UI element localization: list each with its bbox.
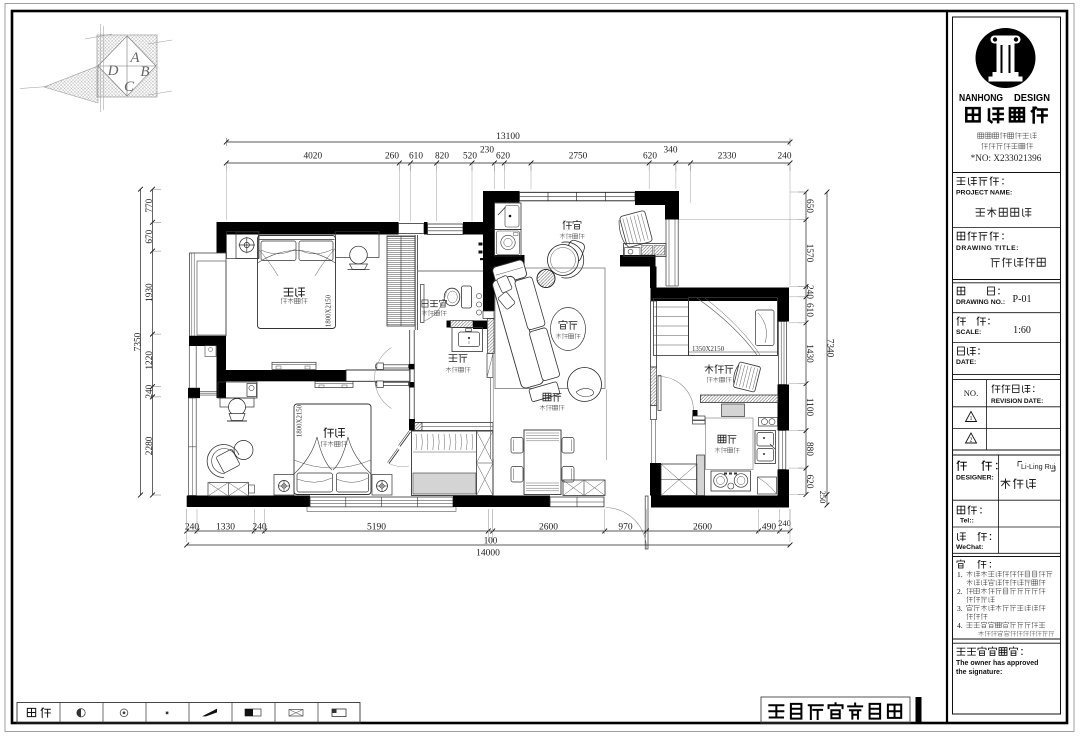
- svg-text:*NO: X233021396: *NO: X233021396: [971, 153, 1042, 163]
- svg-text:4020: 4020: [304, 152, 323, 162]
- svg-text:610: 610: [804, 303, 814, 317]
- svg-text:Li-Ling Rui: Li-Ling Rui: [1021, 462, 1056, 471]
- svg-text:2: 2: [970, 438, 973, 444]
- svg-text:PROJECT NAME:: PROJECT NAME:: [956, 190, 1012, 197]
- svg-text:520: 520: [463, 152, 477, 162]
- svg-text:A: A: [129, 50, 140, 66]
- svg-text:1.: 1.: [957, 570, 963, 579]
- svg-text:240: 240: [778, 152, 792, 162]
- svg-text:1570: 1570: [804, 244, 814, 263]
- svg-text:240: 240: [185, 523, 200, 533]
- svg-text:1220: 1220: [145, 351, 155, 370]
- svg-text:620: 620: [804, 475, 814, 489]
- svg-text:P-01: P-01: [1013, 294, 1032, 305]
- svg-text:D: D: [107, 63, 119, 79]
- svg-text:1930: 1930: [145, 283, 155, 302]
- svg-text:SCALE:: SCALE:: [956, 329, 981, 336]
- svg-text:2750: 2750: [569, 152, 588, 162]
- svg-text:DATE:: DATE:: [956, 359, 976, 366]
- svg-text:2600: 2600: [693, 523, 712, 533]
- svg-text:DESIGNER:: DESIGNER:: [956, 475, 994, 482]
- svg-text:1:60: 1:60: [1013, 325, 1031, 336]
- svg-text:7340: 7340: [825, 339, 835, 358]
- svg-text:2.: 2.: [957, 587, 963, 596]
- svg-text:1800X2150: 1800X2150: [297, 404, 304, 437]
- svg-text:7350: 7350: [134, 332, 144, 351]
- svg-text:240: 240: [804, 285, 814, 299]
- svg-text:REVISION DATE:: REVISION DATE:: [991, 398, 1043, 405]
- svg-text:2600: 2600: [539, 523, 558, 533]
- svg-text:230: 230: [480, 146, 494, 156]
- svg-text:C: C: [124, 79, 135, 95]
- svg-text:2280: 2280: [145, 436, 155, 455]
- svg-text:340: 340: [664, 146, 678, 156]
- svg-text:1330: 1330: [216, 523, 235, 533]
- svg-text:240: 240: [778, 518, 791, 528]
- svg-text:DRAWING NO.:: DRAWING NO.:: [956, 299, 1005, 306]
- svg-text:1430: 1430: [804, 344, 814, 363]
- svg-text:3.: 3.: [957, 604, 963, 613]
- svg-text:970: 970: [618, 523, 633, 533]
- svg-text:1: 1: [970, 416, 973, 422]
- svg-text:Tel::: Tel::: [960, 518, 974, 525]
- svg-text:670: 670: [145, 229, 155, 243]
- svg-text:650: 650: [804, 199, 814, 213]
- svg-text:B: B: [140, 64, 149, 80]
- svg-text:770: 770: [145, 198, 155, 212]
- svg-text:2330: 2330: [718, 152, 737, 162]
- svg-text:1100: 1100: [804, 398, 814, 417]
- svg-text:820: 820: [435, 152, 449, 162]
- svg-text:NANHONG: NANHONG: [959, 93, 1003, 104]
- svg-text:13100: 13100: [496, 132, 520, 142]
- svg-text:5190: 5190: [367, 523, 386, 533]
- svg-text:260: 260: [385, 152, 399, 162]
- svg-text:NO.: NO.: [964, 388, 978, 398]
- svg-text:WeChat:: WeChat:: [956, 544, 983, 551]
- svg-text:240: 240: [252, 523, 267, 533]
- svg-text:610: 610: [409, 152, 423, 162]
- svg-text:DESIGN: DESIGN: [1014, 93, 1050, 104]
- svg-text:100: 100: [484, 536, 498, 546]
- svg-text:4.: 4.: [957, 621, 963, 630]
- svg-text:1800X2150: 1800X2150: [326, 294, 333, 327]
- svg-text:DRAWING TITLE:: DRAWING TITLE:: [956, 245, 1019, 252]
- svg-text:620: 620: [643, 152, 657, 162]
- svg-text:250: 250: [818, 491, 828, 504]
- svg-text:490: 490: [762, 523, 777, 533]
- svg-text:240: 240: [145, 384, 155, 398]
- svg-text:The owner has approved: The owner has approved: [956, 660, 1038, 667]
- svg-text:620: 620: [496, 152, 510, 162]
- svg-text:14000: 14000: [476, 549, 500, 559]
- svg-text:the signature:: the signature:: [956, 669, 1002, 676]
- svg-text:880: 880: [804, 442, 814, 456]
